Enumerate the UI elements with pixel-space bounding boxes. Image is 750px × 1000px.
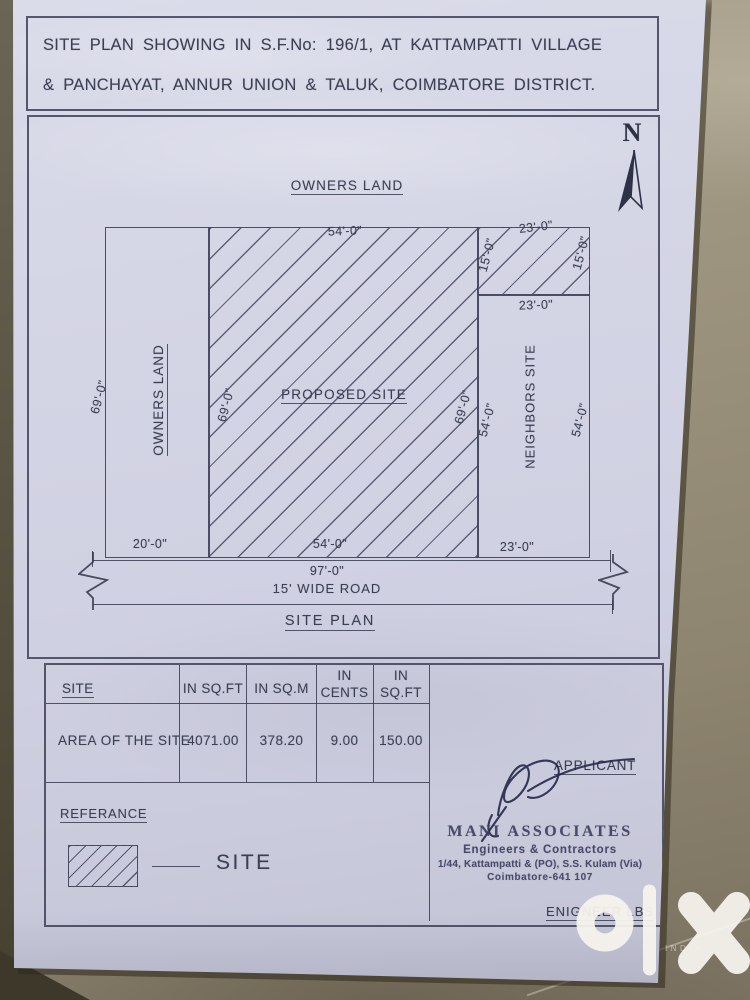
legend-site-label: SITE (216, 851, 273, 875)
table-bottom-divider (46, 782, 429, 783)
table-col-line-2 (246, 665, 247, 782)
table-value-cents: 9.00 (318, 733, 371, 748)
title-line-1: SITE PLAN SHOWING IN S.F.No: 196/1, AT K… (43, 36, 602, 55)
legend-hatch-swatch (68, 845, 138, 887)
table-col-line-4 (373, 665, 374, 782)
dim-bottom-54: 54'-0" (300, 537, 360, 551)
road-label: 15' WIDE ROAD (267, 581, 387, 596)
table-header-sqft: IN SQ.FT (182, 681, 244, 696)
title-box: SITE PLAN SHOWING IN S.F.No: 196/1, AT K… (26, 16, 659, 111)
stamp-address-1: 1/44, Kattampatti & (PO), S.S. Kulam (Vi… (432, 859, 648, 870)
reference-heading: REFERANCE (60, 805, 147, 823)
table-col-line-3 (316, 665, 317, 782)
dim-top-54: 54'-0" (315, 223, 375, 239)
table-header-sqft2: IN SQ.FT (375, 667, 427, 701)
dim-below-extension-23: 23'-0" (505, 297, 567, 313)
owners-land-strip-label: OWNERS LAND (150, 339, 168, 461)
dim-bottom-left-20: 20'-0" (120, 537, 180, 551)
road-south-edge (93, 604, 612, 605)
table-value-sqm: 378.20 (249, 733, 314, 748)
dim-bottom-right-23: 23'-0" (487, 540, 547, 554)
dim-total-97: 97'-0" (295, 564, 359, 578)
stamp-role: Engineers & Contractors (432, 844, 648, 856)
table-value-sqft: 4071.00 (182, 733, 244, 748)
legend-dash (152, 866, 200, 867)
table-header-cents: IN CENTS (318, 667, 371, 701)
olx-watermark: INDIA (565, 875, 750, 990)
road-break-left-icon (78, 552, 110, 610)
road-break-right-icon (598, 554, 630, 610)
photographed-site-plan-document: SITE PLAN SHOWING IN S.F.No: 196/1, AT K… (0, 0, 750, 1000)
stamp-block: MANI ASSOCIATES Engineers & Contractors … (432, 823, 648, 883)
compass-north-label: N (612, 118, 652, 148)
north-arrow-icon (608, 148, 654, 222)
table-right-divider (429, 665, 430, 921)
proposed-site-label: PROPOSED SITE (278, 386, 410, 404)
olx-o-icon (586, 904, 625, 943)
paper-sheet: SITE PLAN SHOWING IN S.F.No: 196/1, AT K… (0, 0, 750, 1000)
site-plan-caption: SITE PLAN (275, 612, 385, 630)
table-col-line-1 (179, 665, 180, 782)
table-header-site: SITE (62, 681, 94, 696)
owners-land-top-label: OWNERS LAND (277, 177, 417, 195)
neighbors-site-label: NEIGHBORS SITE (523, 332, 538, 482)
table-header-divider (46, 703, 429, 704)
stamp-firm-name: MANI ASSOCIATES (432, 823, 648, 841)
table-header-sqm: IN SQ.M (249, 681, 314, 696)
road-north-edge (93, 560, 611, 561)
table-value-sqft2: 150.00 (375, 733, 427, 748)
olx-country-label: INDIA (665, 944, 704, 953)
title-line-2: & PANCHAYAT, ANNUR UNION & TALUK, COIMBA… (43, 76, 595, 95)
table-row-label: AREA OF THE SITE (58, 733, 190, 748)
